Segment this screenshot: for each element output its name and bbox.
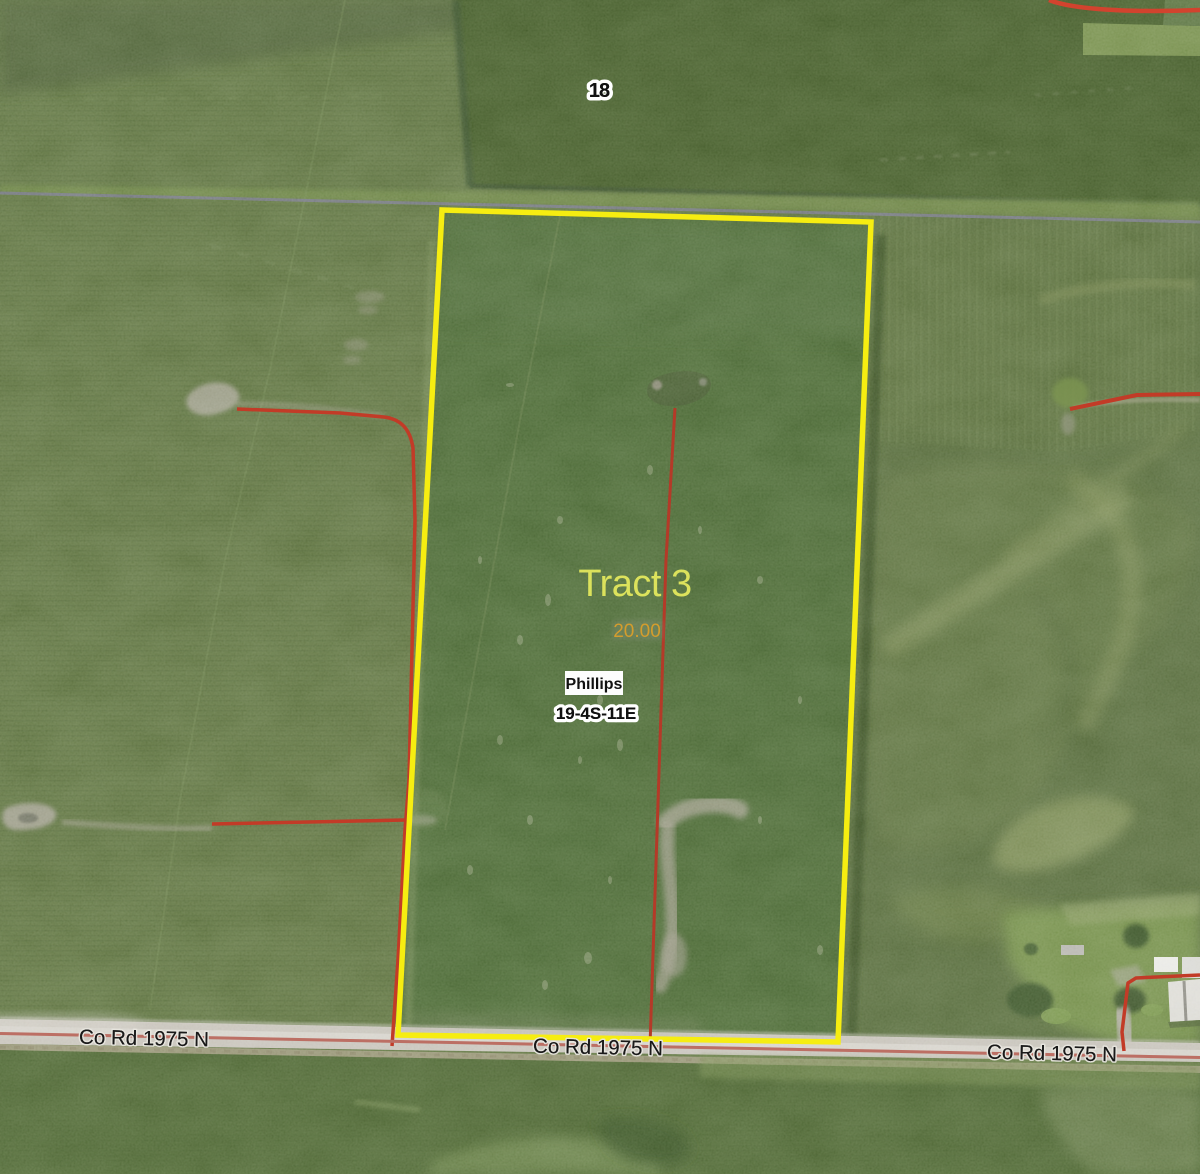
svg-text:Co Rd 1975 N: Co Rd 1975 N	[79, 1026, 209, 1052]
svg-text:Tract 3: Tract 3	[578, 563, 691, 605]
svg-text:19-4S-11E: 19-4S-11E	[556, 704, 636, 723]
svg-text:20.00: 20.00	[613, 621, 661, 642]
svg-text:Co Rd 1975 N: Co Rd 1975 N	[533, 1035, 663, 1061]
svg-text:Phillips: Phillips	[566, 676, 623, 693]
svg-text:Co Rd 1975 N: Co Rd 1975 N	[987, 1041, 1117, 1067]
svg-text:18: 18	[589, 80, 610, 102]
